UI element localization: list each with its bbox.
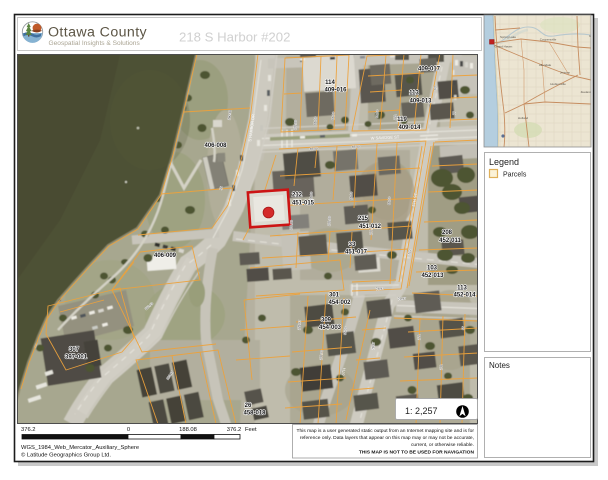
svg-text:66.00: 66.00 — [375, 110, 380, 118]
svg-text:132: 132 — [439, 364, 443, 370]
svg-text:66.00: 66.00 — [310, 146, 318, 151]
svg-text:113: 113 — [409, 91, 419, 97]
svg-text:103: 103 — [427, 266, 438, 272]
svg-text:406-008: 406-008 — [204, 143, 227, 149]
svg-text:119: 119 — [397, 117, 407, 123]
svg-text:Hudsonville: Hudsonville — [550, 82, 566, 86]
svg-text:114: 114 — [325, 80, 335, 86]
svg-text:454-003: 454-003 — [319, 325, 342, 331]
svg-text:66.00: 66.00 — [313, 117, 318, 125]
svg-text:212: 212 — [292, 193, 303, 199]
svg-text:26: 26 — [245, 403, 252, 409]
svg-text:THIS MAP IS NOT TO BE USED FOR: THIS MAP IS NOT TO BE USED FOR NAVIGATIO… — [359, 450, 475, 456]
svg-text:Jenison: Jenison — [560, 71, 571, 75]
svg-text:215: 215 — [358, 216, 369, 222]
svg-text:1: 2,257: 1: 2,257 — [405, 406, 438, 416]
svg-text:66.00: 66.00 — [349, 192, 354, 200]
svg-text:66: 66 — [461, 326, 465, 330]
svg-text:451-015: 451-015 — [292, 201, 315, 207]
svg-text:122: 122 — [417, 334, 421, 340]
svg-text:63: 63 — [433, 86, 437, 90]
svg-text:Legend: Legend — [489, 157, 519, 167]
svg-text:© Latitude Geographics Group L: © Latitude Geographics Group Ltd. — [21, 452, 111, 459]
svg-text:454-002: 454-002 — [328, 300, 351, 306]
svg-text:Ottawa County: Ottawa County — [48, 25, 148, 41]
svg-text:409-017: 409-017 — [418, 67, 441, 73]
svg-text:113: 113 — [457, 286, 467, 292]
svg-text:376.2: 376.2 — [227, 427, 242, 433]
svg-text:Zeeland: Zeeland — [581, 90, 592, 94]
svg-text:452-013: 452-013 — [421, 273, 444, 279]
svg-text:406-009: 406-009 — [154, 253, 177, 259]
svg-text:132.00: 132.00 — [327, 216, 332, 226]
svg-text:current, or otherwise reliable: current, or otherwise reliable. — [411, 442, 474, 448]
svg-text:79.97: 79.97 — [371, 342, 376, 351]
svg-text:Feet: Feet — [245, 427, 257, 433]
svg-text:409-013: 409-013 — [409, 99, 432, 105]
svg-text:55: 55 — [219, 186, 223, 190]
svg-text:307: 307 — [69, 347, 80, 353]
svg-text:Notes: Notes — [489, 361, 510, 370]
svg-text:132.00: 132.00 — [289, 220, 294, 230]
svg-text:This map is a user generated s: This map is a user generated static outp… — [296, 428, 474, 434]
svg-text:reference only. Data layers th: reference only. Data layers that appear … — [300, 435, 474, 441]
svg-text:132.00: 132.00 — [293, 120, 298, 130]
svg-text:79.97: 79.97 — [398, 296, 406, 301]
svg-text:77: 77 — [452, 111, 456, 115]
svg-text:0: 0 — [127, 427, 130, 433]
svg-text:Coopersville: Coopersville — [540, 38, 557, 42]
svg-text:33: 33 — [349, 242, 356, 248]
svg-text:Holland: Holland — [518, 116, 529, 120]
svg-text:66.00: 66.00 — [309, 192, 314, 200]
svg-text:208: 208 — [442, 230, 453, 236]
svg-text:66.00: 66.00 — [387, 197, 392, 205]
svg-text:78.97: 78.97 — [376, 286, 384, 291]
svg-text:451-017: 451-017 — [345, 250, 368, 256]
svg-text:Geospatial Insights & Solution: Geospatial Insights & Solutions — [49, 40, 141, 47]
svg-text:376.2: 376.2 — [21, 427, 36, 433]
svg-text:66.00: 66.00 — [331, 112, 336, 120]
svg-text:WGS_1984_Web_Mercator_Auxiliar: WGS_1984_Web_Mercator_Auxiliary_Sphere — [21, 445, 139, 451]
svg-text:66.00: 66.00 — [352, 144, 360, 149]
svg-text:Spring Lake: Spring Lake — [500, 35, 516, 39]
svg-text:458-018: 458-018 — [243, 411, 266, 417]
svg-text:Parcels: Parcels — [503, 172, 527, 179]
svg-text:218 S Harbor #202: 218 S Harbor #202 — [179, 30, 290, 45]
svg-text:409-016: 409-016 — [324, 88, 347, 94]
svg-text:451-012: 451-012 — [359, 224, 382, 230]
svg-text:409-014: 409-014 — [398, 125, 421, 131]
svg-text:452-011: 452-011 — [439, 238, 461, 244]
svg-text:Grand Haven: Grand Haven — [495, 45, 513, 49]
svg-text:301: 301 — [329, 293, 340, 299]
svg-text:66.00: 66.00 — [343, 327, 348, 336]
svg-text:452-014: 452-014 — [453, 293, 476, 299]
svg-text:Allendale: Allendale — [539, 63, 552, 67]
svg-text:309: 309 — [321, 318, 332, 324]
svg-text:397-001: 397-001 — [65, 355, 88, 361]
svg-text:188.08: 188.08 — [179, 427, 197, 433]
